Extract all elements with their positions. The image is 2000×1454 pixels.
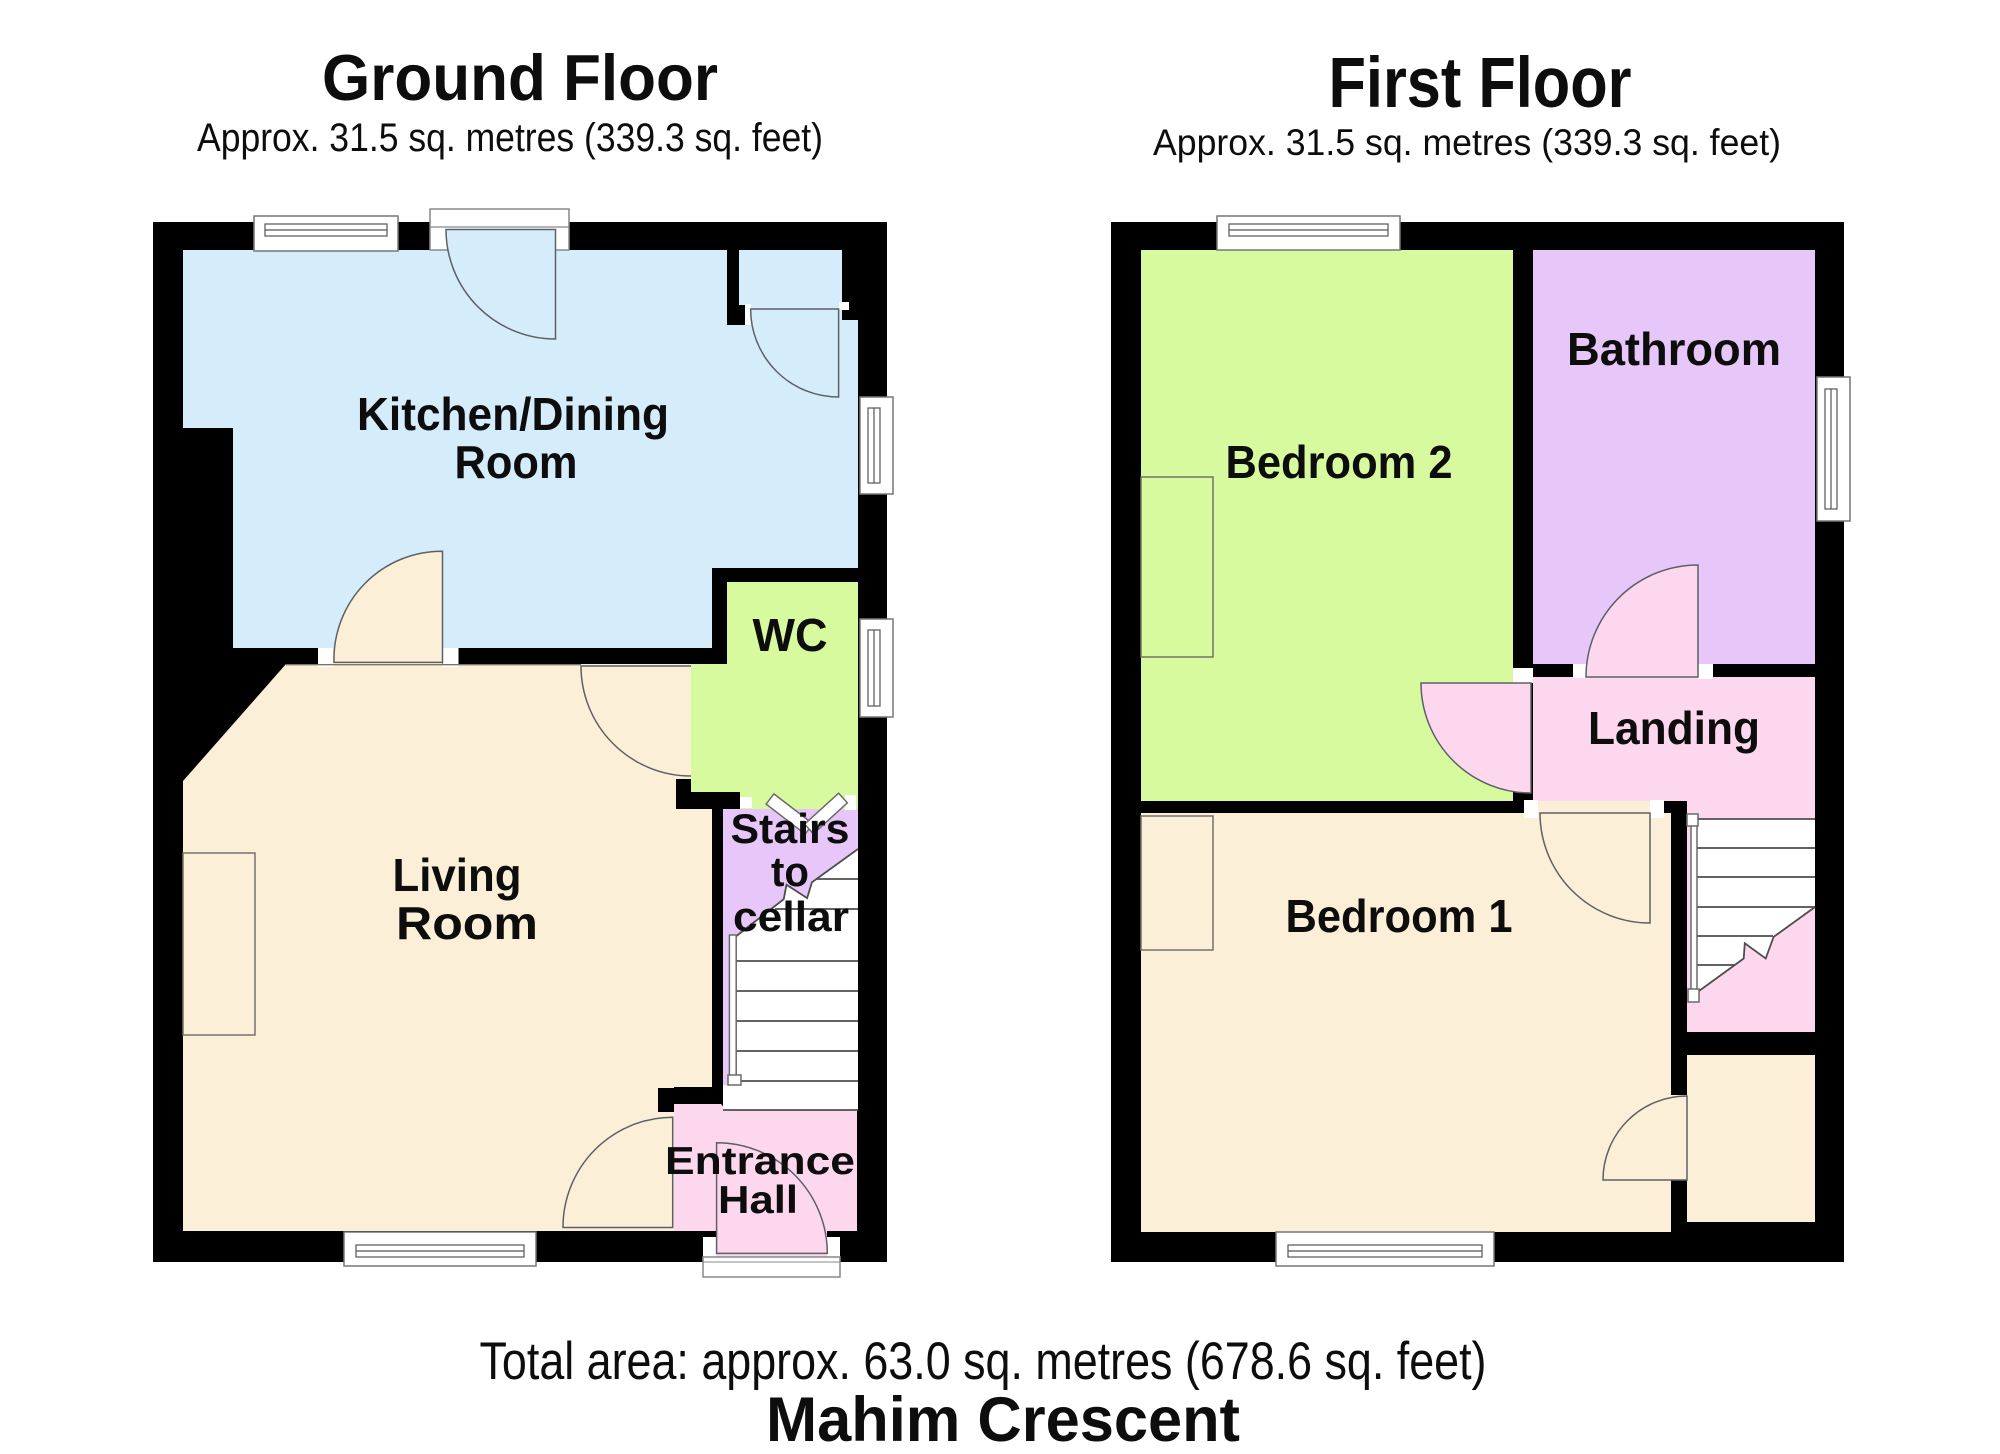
svg-text:Stairs: Stairs: [731, 805, 850, 852]
svg-text:Room: Room: [455, 436, 578, 488]
svg-text:Landing: Landing: [1588, 702, 1760, 754]
svg-text:Entrance: Entrance: [665, 1140, 855, 1183]
svg-text:Ground Floor: Ground Floor: [322, 41, 718, 114]
svg-text:Kitchen/Dining: Kitchen/Dining: [357, 388, 669, 440]
svg-text:Total area: approx. 63.0 sq. m: Total area: approx. 63.0 sq. metres (678…: [480, 1332, 1487, 1391]
svg-text:WC: WC: [753, 609, 828, 661]
svg-text:Hall: Hall: [718, 1179, 798, 1222]
svg-text:cellar: cellar: [733, 893, 849, 940]
svg-text:Bedroom 1: Bedroom 1: [1286, 890, 1513, 942]
svg-text:Living: Living: [393, 849, 522, 901]
svg-text:Bedroom 2: Bedroom 2: [1226, 436, 1453, 488]
svg-text:Room: Room: [396, 897, 538, 949]
svg-text:Approx. 31.5 sq. metres (339.3: Approx. 31.5 sq. metres (339.3 sq. feet): [1153, 121, 1781, 163]
svg-text:Mahim Crescent: Mahim Crescent: [766, 1385, 1240, 1454]
svg-text:to: to: [771, 848, 809, 895]
svg-text:First Floor: First Floor: [1329, 44, 1632, 123]
svg-text:Approx. 31.5 sq. metres (339.3: Approx. 31.5 sq. metres (339.3 sq. feet): [197, 116, 823, 160]
svg-text:Bathroom: Bathroom: [1567, 323, 1781, 375]
